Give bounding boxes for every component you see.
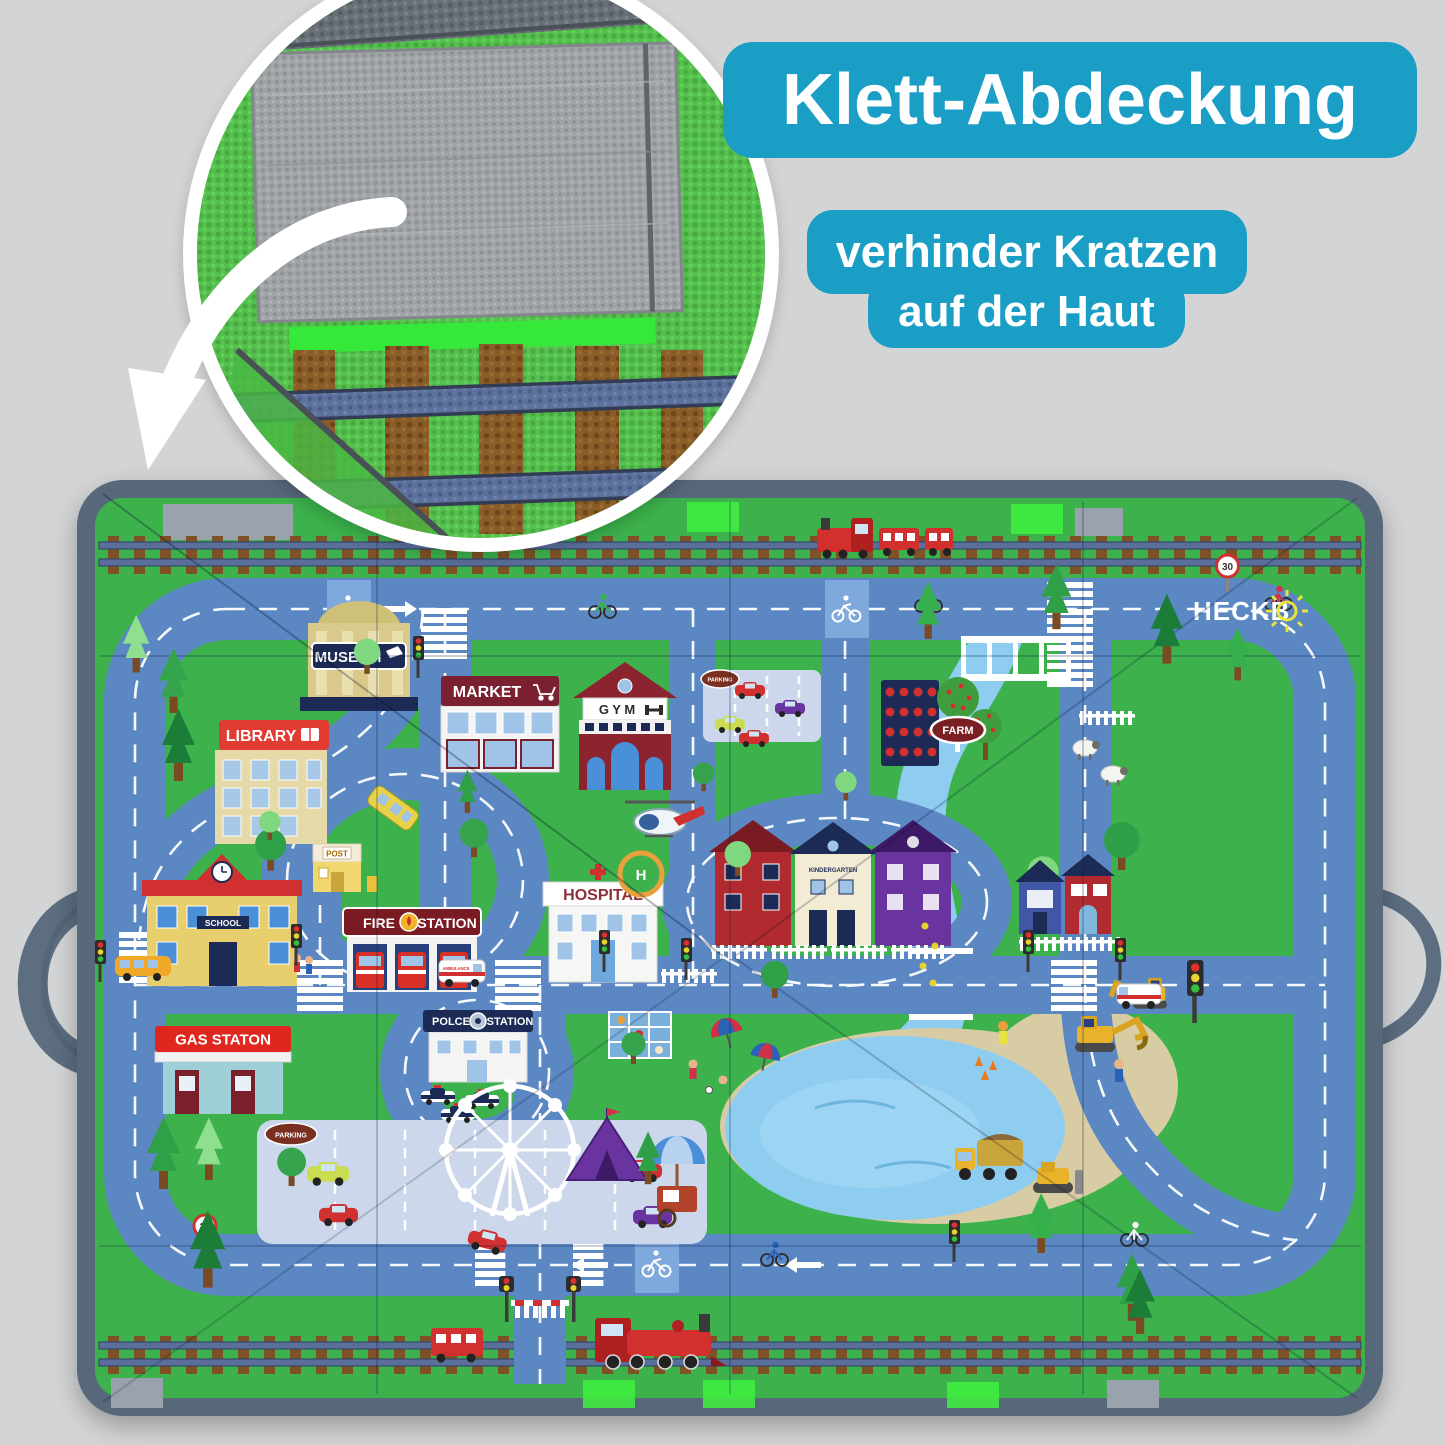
headline-badge: Klett-Abdeckung [723,42,1417,158]
product-image: Klett-Abdeckung verhinder Kratzen auf de… [0,0,1445,1445]
subheadline-line2: auf der Haut [868,276,1185,348]
